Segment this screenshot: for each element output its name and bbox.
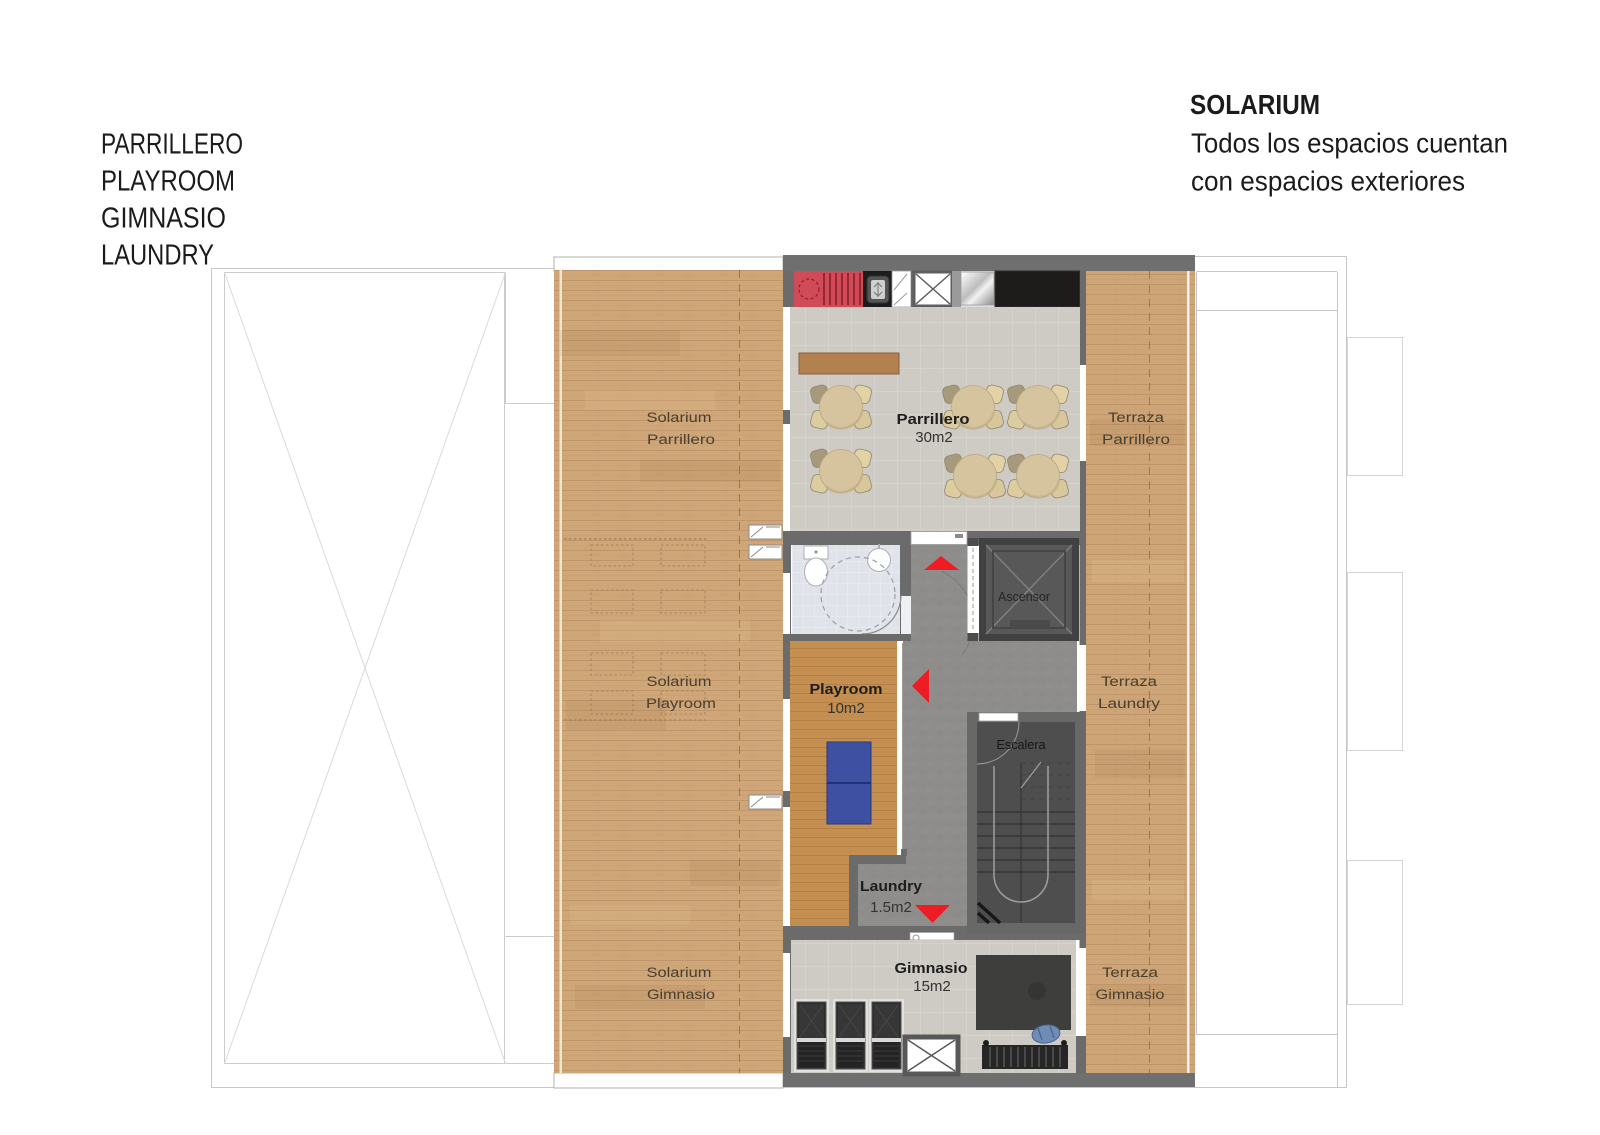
svg-text:GIMNASIO: GIMNASIO bbox=[101, 203, 226, 235]
svg-text:Laundry: Laundry bbox=[860, 878, 923, 895]
svg-text:con espacios exteriores: con espacios exteriores bbox=[1191, 166, 1465, 197]
svg-text:LAUNDRY: LAUNDRY bbox=[101, 240, 214, 272]
svg-text:Gimnasio: Gimnasio bbox=[647, 987, 715, 1002]
svg-text:Solarium: Solarium bbox=[647, 965, 712, 980]
svg-text:Solarium: Solarium bbox=[647, 410, 712, 425]
svg-text:15m2: 15m2 bbox=[913, 978, 951, 995]
svg-text:Gimnasio: Gimnasio bbox=[895, 960, 968, 977]
svg-text:Laundry: Laundry bbox=[1098, 696, 1160, 711]
svg-text:Parrillero: Parrillero bbox=[897, 411, 970, 428]
svg-text:Gimnasio: Gimnasio bbox=[1096, 987, 1165, 1002]
svg-text:Todos los espacios cuentan: Todos los espacios cuentan bbox=[1191, 128, 1508, 159]
svg-text:1.5m2: 1.5m2 bbox=[870, 899, 912, 916]
svg-text:Solarium: Solarium bbox=[647, 674, 712, 689]
svg-text:10m2: 10m2 bbox=[827, 700, 865, 717]
svg-text:Parrillero: Parrillero bbox=[1102, 432, 1170, 447]
svg-text:PARRILLERO: PARRILLERO bbox=[101, 129, 243, 161]
svg-text:Terraza: Terraza bbox=[1108, 410, 1165, 425]
svg-text:SOLARIUM: SOLARIUM bbox=[1190, 89, 1320, 120]
svg-text:Parrillero: Parrillero bbox=[647, 432, 715, 447]
svg-text:Terraza: Terraza bbox=[1101, 674, 1158, 689]
svg-text:Escalera: Escalera bbox=[997, 737, 1047, 752]
svg-text:Playroom: Playroom bbox=[810, 681, 883, 698]
svg-text:PLAYROOM: PLAYROOM bbox=[101, 166, 235, 198]
svg-text:Ascensor: Ascensor bbox=[998, 589, 1051, 604]
svg-text:Playroom: Playroom bbox=[646, 696, 716, 711]
svg-text:Terraza: Terraza bbox=[1102, 965, 1159, 980]
svg-text:30m2: 30m2 bbox=[915, 429, 953, 446]
